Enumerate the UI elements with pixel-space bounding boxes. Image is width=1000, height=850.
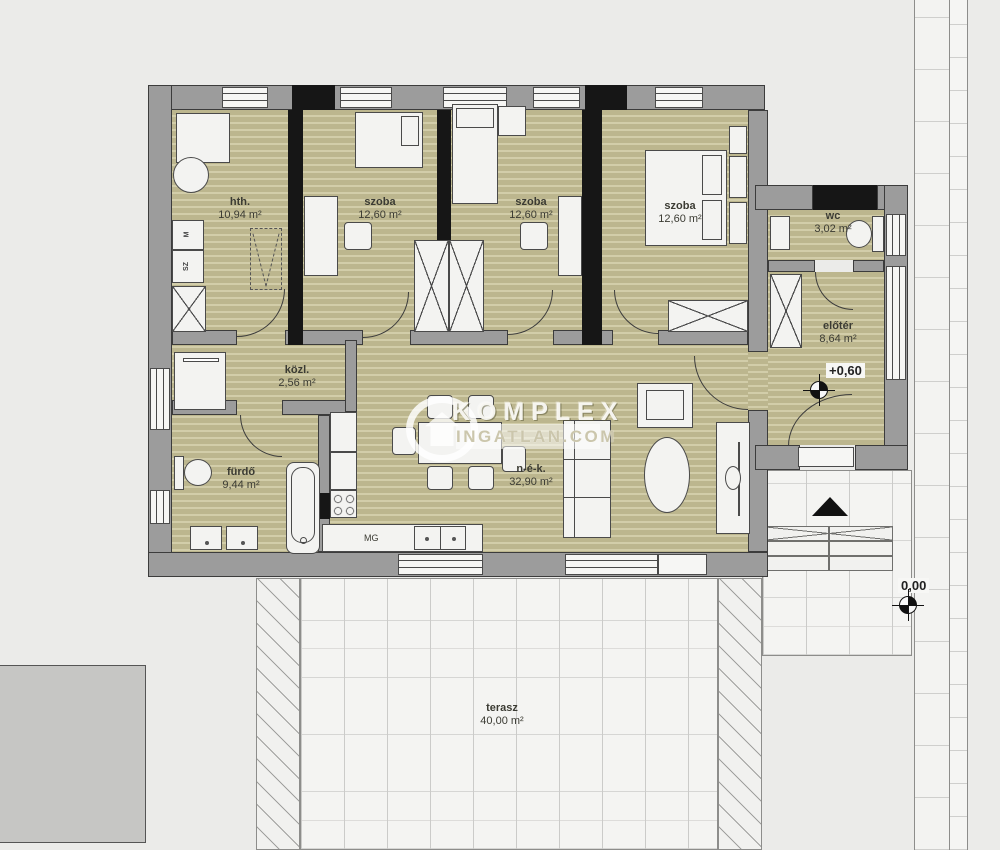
- room-label-nek: n-é-k. 32,90 m²: [496, 463, 566, 488]
- terrace-door-panel: [658, 554, 707, 575]
- drying-rack-line: [265, 234, 279, 287]
- window: [655, 87, 703, 108]
- kitchen-counter: [330, 452, 357, 490]
- watermark-subtitle: INGATLAN.COM: [456, 424, 600, 449]
- bed-pillow: [456, 108, 494, 128]
- faucet-dot: [452, 537, 456, 541]
- refrigerator: [330, 412, 357, 452]
- corridor-wall: [410, 330, 508, 345]
- walkway-path: [914, 0, 950, 850]
- room-label-eloter: előtér 8,64 m²: [803, 320, 873, 345]
- chair: [520, 222, 548, 250]
- chimney-block: [585, 85, 627, 110]
- window: [886, 266, 906, 380]
- entry-level-value: +0,60: [826, 363, 865, 378]
- wardrobe-icon: [770, 274, 802, 348]
- coffee-table: [644, 437, 690, 513]
- faucet-dot: [205, 541, 209, 545]
- room-label-terasz: terasz 40,00 m²: [462, 702, 542, 727]
- window: [150, 490, 170, 524]
- room-label-hth: hth. 10,94 m²: [205, 196, 275, 221]
- window: [565, 554, 658, 575]
- bathtub: [286, 462, 320, 554]
- bedside-table: [498, 106, 526, 136]
- cabinet-sz-label: SZ: [183, 262, 190, 271]
- desk: [304, 196, 338, 276]
- window: [533, 87, 580, 108]
- washing-machine: [176, 113, 230, 163]
- wc-sink: [770, 216, 790, 250]
- laundry-basin: [173, 157, 209, 193]
- bathroom-sink: [226, 526, 258, 550]
- wc-wall-left: [768, 260, 815, 272]
- window: [340, 87, 392, 108]
- wall-szobac-annex-upper: [748, 110, 768, 352]
- corridor-wall: [658, 330, 748, 345]
- cabinet-sz: SZ: [172, 250, 204, 283]
- partition-wall-black: [288, 110, 303, 345]
- chimney-block: [813, 185, 877, 210]
- nightstand: [729, 202, 747, 244]
- bathtub-inner: [291, 467, 315, 543]
- terrace-edge-right: [718, 578, 762, 850]
- window: [398, 554, 483, 575]
- wardrobe-icon: [414, 240, 449, 332]
- corridor-wall: [172, 330, 237, 345]
- toilet-tank: [872, 216, 884, 252]
- cabinet-m-label: M: [183, 232, 190, 238]
- walkway-path-edge: [950, 0, 968, 850]
- window: [150, 368, 170, 430]
- drying-rack-line: [252, 234, 266, 287]
- chair: [427, 466, 453, 490]
- wardrobe-icon: [449, 240, 484, 332]
- entry-step-divider: [828, 526, 830, 571]
- faucet-dot: [241, 541, 245, 545]
- outbuilding-block: [0, 665, 146, 843]
- floor-passage: [748, 352, 768, 410]
- level-marker-icon: [810, 381, 828, 399]
- front-door-panel: [798, 447, 854, 467]
- annex-wall-top-left: [755, 185, 813, 210]
- annex-wall-bottom-left: [755, 445, 800, 470]
- watermark-title: KOMPLEX: [452, 398, 625, 427]
- faucet-dot: [425, 537, 429, 541]
- level-marker-vline: [908, 589, 909, 621]
- partition-wall-black: [437, 110, 451, 240]
- window: [222, 87, 268, 108]
- room-label-szoba-a: szoba 12,60 m²: [345, 196, 415, 221]
- floorplan-canvas: terasz 40,00 m² 0,00: [0, 0, 1000, 850]
- room-label-szoba-c: szoba 12,60 m²: [645, 200, 715, 225]
- wardrobe-icon: [668, 300, 748, 332]
- armchair-seat-line: [646, 390, 684, 420]
- ground-level-value: 0,00: [898, 578, 929, 593]
- nightstand: [729, 156, 747, 198]
- wc-wall-right: [853, 260, 884, 272]
- room-label-furdo: fürdő 9,44 m²: [206, 466, 276, 491]
- cabinet-m: M: [172, 220, 204, 250]
- sink-divider: [440, 527, 441, 549]
- entry-direction-arrow: [812, 497, 848, 516]
- dishwasher-label: MG: [364, 533, 379, 543]
- stove: [330, 490, 357, 518]
- chimney-block: [292, 85, 335, 110]
- wall-szobac-annex-lower: [748, 410, 768, 552]
- chair: [344, 222, 372, 250]
- bed-pillow: [401, 116, 419, 146]
- drying-rack: [250, 228, 282, 290]
- room-label-szoba-b: szoba 12,60 m²: [496, 196, 566, 221]
- kitchen-sink: [414, 526, 466, 550]
- room-label-wc: wc 3,02 m²: [798, 210, 868, 235]
- annex-wall-bottom-right: [855, 445, 908, 470]
- window: [886, 214, 906, 256]
- armchair: [637, 383, 693, 428]
- toilet-tank: [174, 456, 184, 490]
- wardrobe-icon: [172, 286, 206, 332]
- cabinet: [729, 126, 747, 154]
- hall-divider-wall: [345, 340, 357, 412]
- cabinet-handle: [183, 358, 219, 362]
- watermark-band: INGATLAN.COM: [456, 424, 600, 449]
- bed-pillow: [702, 155, 722, 195]
- level-marker-vline: [819, 374, 820, 406]
- partition-wall-black: [582, 110, 602, 345]
- terrace-edge-left: [256, 578, 300, 850]
- bathroom-sink: [190, 526, 222, 550]
- chair: [468, 466, 494, 490]
- tv-lens: [725, 466, 741, 490]
- bathroom-cabinet: [174, 352, 226, 410]
- level-marker-icon: [899, 596, 917, 614]
- room-label-kozl: közl. 2,56 m²: [262, 364, 332, 389]
- bathtub-drain: [300, 537, 307, 544]
